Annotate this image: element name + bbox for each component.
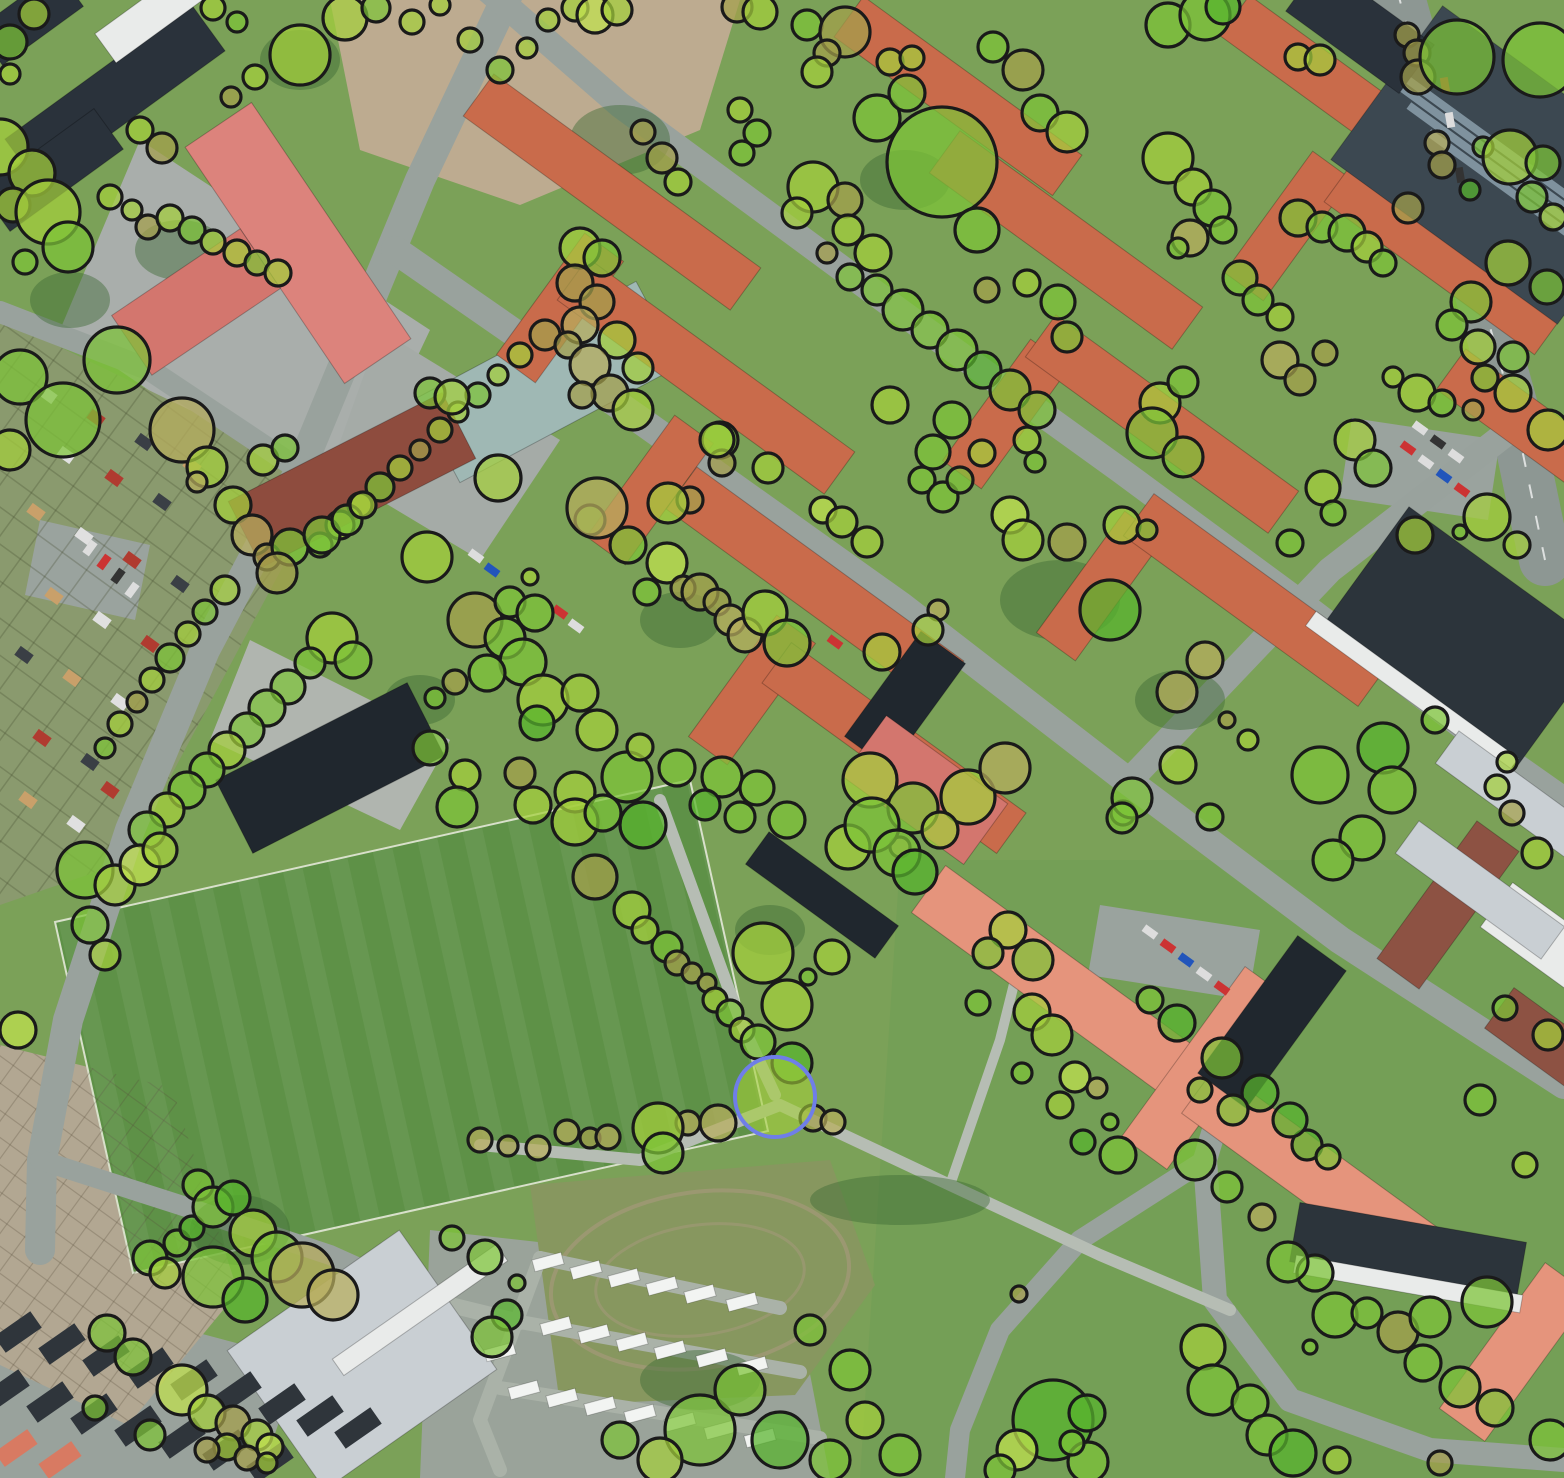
tree-crown-marker[interactable]	[602, 0, 632, 25]
tree-crown-marker[interactable]	[402, 532, 452, 582]
tree-crown-marker[interactable]	[1071, 1130, 1095, 1154]
tree-crown-marker[interactable]	[1212, 1172, 1242, 1202]
tree-crown-marker[interactable]	[955, 208, 999, 252]
tree-crown-marker[interactable]	[84, 327, 150, 393]
tree-crown-marker[interactable]	[762, 980, 812, 1030]
tree-crown-marker[interactable]	[985, 1455, 1015, 1478]
tree-crown-marker[interactable]	[83, 1396, 107, 1420]
tree-crown-marker[interactable]	[458, 28, 482, 52]
tree-crown-marker[interactable]	[413, 731, 447, 765]
tree-crown-marker[interactable]	[508, 343, 532, 367]
tree-crown-marker[interactable]	[1429, 152, 1455, 178]
tree-crown-marker[interactable]	[1013, 940, 1053, 980]
tree-crown-marker[interactable]	[350, 492, 376, 518]
tree-crown-marker[interactable]	[1159, 1005, 1195, 1041]
tree-crown-marker[interactable]	[221, 87, 241, 107]
tree-crown-marker[interactable]	[468, 1128, 492, 1152]
tree-crown-marker[interactable]	[450, 760, 480, 790]
tree-crown-marker[interactable]	[1530, 270, 1564, 304]
tree-crown-marker[interactable]	[1019, 392, 1055, 428]
map-viewport[interactable]	[0, 0, 1564, 1478]
tree-crown-marker[interactable]	[1528, 410, 1564, 450]
tree-crown-marker[interactable]	[620, 802, 666, 848]
tree-crown-marker[interactable]	[567, 478, 627, 538]
tree-crown-marker[interactable]	[1316, 1145, 1340, 1169]
tree-crown-marker[interactable]	[430, 0, 450, 15]
tree-crown-marker[interactable]	[753, 453, 783, 483]
tree-crown-marker[interactable]	[1463, 400, 1483, 420]
tree-crown-marker[interactable]	[227, 12, 247, 32]
tree-crown-marker[interactable]	[562, 675, 598, 711]
tree-crown-marker[interactable]	[1503, 23, 1564, 97]
tree-crown-marker[interactable]	[1188, 1365, 1238, 1415]
tree-crown-marker[interactable]	[1104, 507, 1140, 543]
tree-crown-marker[interactable]	[26, 383, 100, 457]
tree-crown-marker[interactable]	[665, 169, 691, 195]
tree-crown-marker[interactable]	[922, 812, 958, 848]
tree-crown-marker[interactable]	[1069, 1395, 1105, 1431]
tree-crown-marker[interactable]	[810, 1440, 850, 1478]
tree-crown-marker[interactable]	[852, 527, 882, 557]
tree-crown-marker[interactable]	[127, 117, 153, 143]
tree-crown-marker[interactable]	[980, 743, 1030, 793]
tree-crown-marker[interactable]	[13, 250, 37, 274]
tree-crown-marker[interactable]	[1410, 1297, 1450, 1337]
tree-crown-marker[interactable]	[140, 668, 164, 692]
tree-crown-marker[interactable]	[1461, 330, 1495, 364]
tree-crown-marker[interactable]	[435, 380, 469, 414]
tree-crown-marker[interactable]	[201, 230, 225, 254]
selected-tree-crown-marker[interactable]	[735, 1057, 815, 1137]
tree-crown-marker[interactable]	[800, 969, 816, 985]
tree-crown-marker[interactable]	[425, 688, 445, 708]
tree-crown-marker[interactable]	[555, 1120, 579, 1144]
tree-crown-marker[interactable]	[0, 64, 20, 84]
tree-crown-marker[interactable]	[740, 771, 774, 805]
photo-tree-canopy	[810, 1175, 990, 1225]
tree-crown-marker[interactable]	[1428, 1451, 1452, 1475]
tree-crown-marker[interactable]	[725, 802, 755, 832]
tree-crown-marker[interactable]	[1358, 723, 1408, 773]
tree-crown-marker[interactable]	[1249, 1204, 1275, 1230]
tree-crown-marker[interactable]	[782, 198, 812, 228]
tree-crown-marker[interactable]	[1168, 238, 1188, 258]
tree-crown-marker[interactable]	[410, 440, 430, 460]
tree-crown-marker[interactable]	[187, 472, 207, 492]
tree-crown-marker[interactable]	[1107, 803, 1137, 833]
tree-crown-marker[interactable]	[837, 264, 863, 290]
tree-crown-marker[interactable]	[1321, 501, 1345, 525]
tree-crown-marker[interactable]	[847, 1402, 883, 1438]
tree-crown-marker[interactable]	[1497, 752, 1517, 772]
tree-crown-marker[interactable]	[1504, 532, 1530, 558]
tree-crown-marker[interactable]	[362, 0, 390, 22]
tree-crown-marker[interactable]	[627, 734, 653, 760]
tree-crown-marker[interactable]	[127, 692, 147, 712]
tree-crown-marker[interactable]	[475, 455, 521, 501]
tree-crown-marker[interactable]	[400, 10, 424, 34]
tree-crown-marker[interactable]	[1495, 375, 1531, 411]
tree-crown-marker[interactable]	[1352, 1298, 1382, 1328]
tree-crown-marker[interactable]	[966, 991, 990, 1015]
tree-crown-marker[interactable]	[265, 260, 291, 286]
tree-crown-marker[interactable]	[19, 0, 49, 29]
tree-crown-marker[interactable]	[108, 712, 132, 736]
tree-crown-marker[interactable]	[498, 1136, 518, 1156]
tree-crown-marker[interactable]	[135, 1420, 165, 1450]
tree-crown-marker[interactable]	[517, 38, 537, 58]
tree-crown-marker[interactable]	[1060, 1431, 1084, 1455]
tree-crown-marker[interactable]	[72, 907, 108, 943]
tree-crown-marker[interactable]	[270, 25, 330, 85]
tree-crown-marker[interactable]	[1437, 310, 1467, 340]
tree-crown-marker[interactable]	[428, 418, 452, 442]
tree-crown-marker[interactable]	[1003, 50, 1043, 90]
tree-crown-marker[interactable]	[211, 576, 239, 604]
tree-crown-marker[interactable]	[43, 222, 93, 272]
tree-crown-marker[interactable]	[1011, 1286, 1027, 1302]
tree-crown-marker[interactable]	[1465, 1085, 1495, 1115]
tree-crown-marker[interactable]	[752, 1412, 808, 1468]
tree-crown-marker[interactable]	[335, 642, 371, 678]
tree-crown-marker[interactable]	[1460, 180, 1480, 200]
tree-crown-marker[interactable]	[1393, 193, 1423, 223]
tree-crown-marker[interactable]	[1197, 804, 1223, 830]
tree-crown-marker[interactable]	[1014, 427, 1040, 453]
tree-crown-marker[interactable]	[515, 787, 551, 823]
tree-crown-marker[interactable]	[887, 107, 997, 217]
orthophoto-tree-detection-map	[0, 0, 1564, 1478]
tree-crown-marker[interactable]	[1355, 450, 1391, 486]
tree-crown-marker[interactable]	[1052, 322, 1082, 352]
tree-crown-marker[interactable]	[156, 644, 184, 672]
tree-crown-marker[interactable]	[1181, 1325, 1225, 1369]
tree-crown-marker[interactable]	[235, 1446, 259, 1470]
tree-crown-marker[interactable]	[1526, 146, 1560, 180]
tree-crown-marker[interactable]	[916, 435, 950, 469]
tree-crown-marker[interactable]	[469, 655, 505, 691]
tree-crown-marker[interactable]	[1202, 1038, 1242, 1078]
tree-crown-marker[interactable]	[1218, 1095, 1248, 1125]
tree-crown-marker[interactable]	[143, 833, 177, 867]
tree-crown-marker[interactable]	[1405, 1345, 1441, 1381]
tree-crown-marker[interactable]	[323, 0, 367, 40]
tree-crown-marker[interactable]	[1533, 1020, 1563, 1050]
tree-crown-marker[interactable]	[1440, 1367, 1480, 1407]
tree-crown-marker[interactable]	[1080, 580, 1140, 640]
tree-crown-marker[interactable]	[893, 850, 937, 894]
tree-crown-marker[interactable]	[223, 1278, 267, 1322]
tree-crown-marker[interactable]	[1477, 1390, 1513, 1426]
tree-crown-marker[interactable]	[741, 1025, 775, 1059]
tree-crown-marker[interactable]	[195, 1438, 219, 1462]
tree-crown-marker[interactable]	[585, 795, 621, 831]
tree-crown-marker[interactable]	[1206, 0, 1240, 24]
tree-crown-marker[interactable]	[487, 57, 513, 83]
tree-crown-marker[interactable]	[98, 185, 122, 209]
tree-crown-marker[interactable]	[827, 507, 857, 537]
tree-crown-marker[interactable]	[864, 634, 900, 670]
tree-crown-marker[interactable]	[1540, 204, 1564, 230]
tree-crown-marker[interactable]	[1137, 520, 1157, 540]
tree-crown-marker[interactable]	[468, 1240, 502, 1274]
tree-crown-marker[interactable]	[1530, 1420, 1564, 1460]
tree-crown-marker[interactable]	[830, 1350, 870, 1390]
tree-crown-marker[interactable]	[272, 435, 298, 461]
tree-crown-marker[interactable]	[1303, 1340, 1317, 1354]
tree-crown-marker[interactable]	[1513, 1153, 1537, 1177]
tree-crown-marker[interactable]	[1047, 112, 1087, 152]
tree-crown-marker[interactable]	[795, 1315, 825, 1345]
tree-crown-marker[interactable]	[257, 1453, 277, 1473]
tree-crown-marker[interactable]	[308, 1270, 358, 1320]
tree-crown-marker[interactable]	[520, 706, 554, 740]
tree-crown-marker[interactable]	[828, 183, 862, 217]
tree-crown-marker[interactable]	[769, 802, 805, 838]
tree-crown-marker[interactable]	[1003, 520, 1043, 560]
tree-crown-marker[interactable]	[1187, 642, 1223, 678]
tree-crown-marker[interactable]	[1464, 494, 1510, 540]
tree-crown-marker[interactable]	[1168, 367, 1198, 397]
tree-crown-marker[interactable]	[193, 600, 217, 624]
tree-crown-marker[interactable]	[975, 278, 999, 302]
tree-crown-marker[interactable]	[1292, 747, 1348, 803]
tree-crown-marker[interactable]	[1041, 285, 1075, 319]
tree-crown-marker[interactable]	[1012, 1063, 1032, 1083]
tree-crown-marker[interactable]	[1485, 775, 1509, 799]
tree-crown-marker[interactable]	[855, 235, 891, 271]
tree-crown-marker[interactable]	[1268, 1242, 1308, 1282]
tree-crown-marker[interactable]	[1163, 437, 1203, 477]
tree-crown-marker[interactable]	[872, 387, 908, 423]
tree-crown-marker[interactable]	[150, 1258, 180, 1288]
tree-crown-marker[interactable]	[802, 57, 832, 87]
tree-crown-marker[interactable]	[913, 615, 943, 645]
tree-crown-marker[interactable]	[1397, 517, 1433, 553]
tree-crown-marker[interactable]	[792, 10, 822, 40]
tree-crown-marker[interactable]	[437, 787, 477, 827]
tree-crown-marker[interactable]	[596, 1125, 620, 1149]
tree-crown-marker[interactable]	[889, 75, 925, 111]
tree-crown-marker[interactable]	[1313, 840, 1353, 880]
tree-crown-marker[interactable]	[0, 1012, 36, 1048]
tree-crown-marker[interactable]	[90, 940, 120, 970]
tree-crown-marker[interactable]	[1285, 365, 1315, 395]
tree-crown-marker[interactable]	[526, 1136, 550, 1160]
tree-crown-marker[interactable]	[577, 710, 617, 750]
tree-crown-marker[interactable]	[1500, 801, 1524, 825]
tree-crown-marker[interactable]	[505, 758, 535, 788]
tree-crown-marker[interactable]	[115, 1339, 151, 1375]
tree-crown-marker[interactable]	[1087, 1078, 1107, 1098]
tree-crown-marker[interactable]	[1498, 342, 1528, 372]
tree-crown-marker[interactable]	[1032, 1015, 1072, 1055]
tree-crown-marker[interactable]	[728, 98, 752, 122]
tree-crown-marker[interactable]	[764, 620, 810, 666]
tree-crown-marker[interactable]	[1472, 365, 1498, 391]
tree-crown-marker[interactable]	[1160, 747, 1196, 783]
tree-crown-marker[interactable]	[730, 141, 754, 165]
tree-crown-marker[interactable]	[1188, 1078, 1212, 1102]
tree-crown-marker[interactable]	[900, 46, 924, 70]
tree-crown-marker[interactable]	[815, 940, 849, 974]
tree-crown-marker[interactable]	[1370, 250, 1396, 276]
tree-crown-marker[interactable]	[659, 750, 695, 786]
tree-crown-marker[interactable]	[1175, 1140, 1215, 1180]
tree-crown-marker[interactable]	[623, 353, 653, 383]
tree-crown-marker[interactable]	[1422, 707, 1448, 733]
tree-crown-marker[interactable]	[1049, 524, 1085, 560]
tree-crown-marker[interactable]	[638, 1438, 682, 1478]
tree-crown-marker[interactable]	[0, 25, 27, 59]
tree-crown-marker[interactable]	[743, 0, 777, 29]
tree-crown-marker[interactable]	[443, 670, 467, 694]
tree-crown-marker[interactable]	[1369, 767, 1415, 813]
tree-crown-marker[interactable]	[973, 938, 1003, 968]
tree-crown-marker[interactable]	[880, 1435, 920, 1475]
tree-crown-marker[interactable]	[700, 1105, 736, 1141]
tree-crown-marker[interactable]	[715, 1365, 765, 1415]
tree-crown-marker[interactable]	[0, 430, 30, 470]
tree-crown-marker[interactable]	[95, 738, 115, 758]
tree-crown-marker[interactable]	[257, 553, 297, 593]
tree-crown-marker[interactable]	[969, 440, 995, 466]
tree-crown-marker[interactable]	[1100, 1137, 1136, 1173]
tree-crown-marker[interactable]	[1137, 987, 1163, 1013]
tree-crown-marker[interactable]	[573, 855, 617, 899]
tree-crown-marker[interactable]	[947, 467, 973, 493]
tree-crown-marker[interactable]	[648, 483, 688, 523]
tree-crown-marker[interactable]	[201, 0, 225, 20]
tree-crown-marker[interactable]	[1270, 1430, 1316, 1476]
tree-crown-marker[interactable]	[388, 456, 412, 480]
tree-crown-marker[interactable]	[1486, 241, 1530, 285]
tree-crown-marker[interactable]	[700, 423, 734, 457]
tree-crown-marker[interactable]	[1522, 838, 1552, 868]
photo-tree-canopy	[30, 272, 110, 328]
tree-crown-marker[interactable]	[1025, 452, 1045, 472]
tree-crown-marker[interactable]	[1313, 1293, 1357, 1337]
tree-crown-marker[interactable]	[1219, 712, 1235, 728]
tree-crown-marker[interactable]	[472, 1317, 512, 1357]
tree-crown-marker[interactable]	[1305, 45, 1335, 75]
tree-crown-marker[interactable]	[1267, 304, 1293, 330]
tree-crown-marker[interactable]	[176, 622, 200, 646]
tree-crown-marker[interactable]	[1277, 530, 1303, 556]
tree-crown-marker[interactable]	[1238, 730, 1258, 750]
tree-crown-marker[interactable]	[1324, 1447, 1350, 1473]
tree-crown-marker[interactable]	[978, 32, 1008, 62]
tree-crown-marker[interactable]	[522, 569, 538, 585]
tree-crown-marker[interactable]	[1273, 1103, 1307, 1137]
tree-crown-marker[interactable]	[1313, 341, 1337, 365]
tree-crown-marker[interactable]	[1420, 20, 1494, 94]
tree-crown-marker[interactable]	[243, 65, 267, 89]
tree-crown-marker[interactable]	[821, 1110, 845, 1134]
tree-crown-marker[interactable]	[537, 9, 559, 31]
tree-crown-marker[interactable]	[733, 923, 793, 983]
tree-crown-marker[interactable]	[817, 243, 837, 263]
tree-crown-marker[interactable]	[1047, 1092, 1073, 1118]
tree-crown-marker[interactable]	[1157, 672, 1197, 712]
tree-crown-marker[interactable]	[440, 1226, 464, 1250]
tree-crown-marker[interactable]	[1429, 390, 1455, 416]
tree-crown-marker[interactable]	[1102, 1114, 1118, 1130]
tree-crown-marker[interactable]	[643, 1133, 683, 1173]
tree-crown-marker[interactable]	[1493, 996, 1517, 1020]
tree-crown-marker[interactable]	[569, 382, 595, 408]
tree-crown-marker[interactable]	[1462, 1277, 1512, 1327]
tree-crown-marker[interactable]	[1014, 270, 1040, 296]
tree-crown-marker[interactable]	[631, 120, 655, 144]
tree-crown-marker[interactable]	[690, 790, 720, 820]
tree-crown-marker[interactable]	[634, 579, 660, 605]
tree-crown-marker[interactable]	[602, 1422, 638, 1458]
tree-crown-marker[interactable]	[934, 402, 970, 438]
tree-crown-marker[interactable]	[509, 1275, 525, 1291]
tree-crown-marker[interactable]	[1210, 217, 1236, 243]
tree-crown-marker[interactable]	[613, 390, 653, 430]
tree-crown-marker[interactable]	[488, 365, 508, 385]
